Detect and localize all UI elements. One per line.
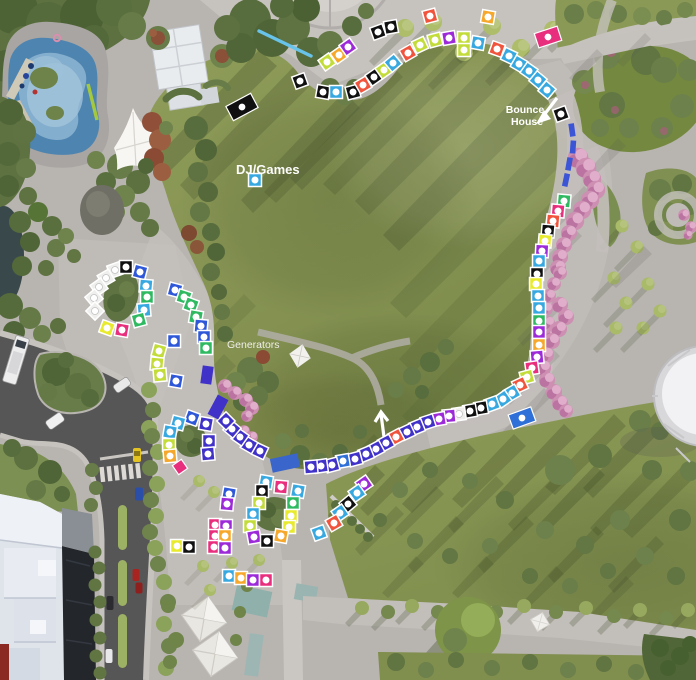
svg-text:Bounce: Bounce [506, 104, 545, 116]
svg-text:DJ/Games: DJ/Games [236, 162, 300, 177]
svg-text:Generators: Generators [227, 339, 280, 351]
